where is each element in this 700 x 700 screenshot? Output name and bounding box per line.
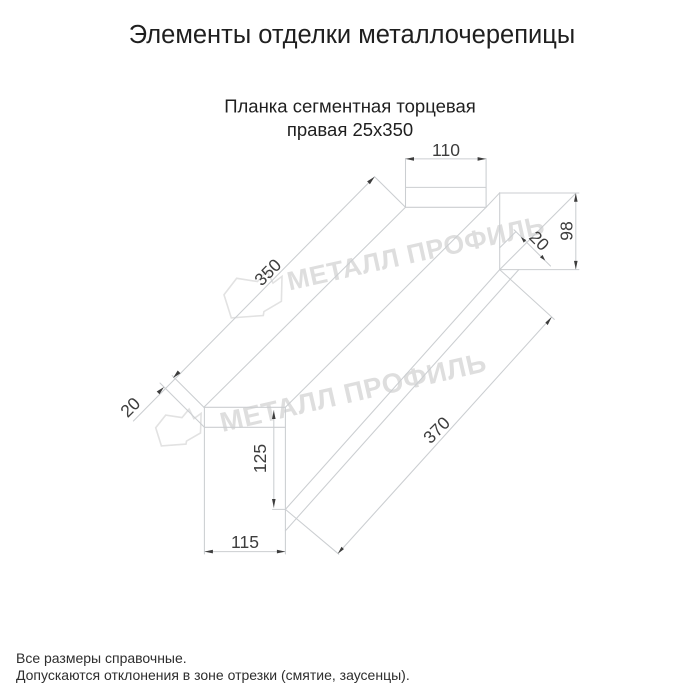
svg-text:Допускаются отклонения в зоне: Допускаются отклонения в зоне отрезки (с…	[16, 667, 410, 683]
svg-text:110: 110	[432, 140, 460, 160]
svg-text:правая 25х350: правая 25х350	[287, 119, 413, 140]
svg-text:Элементы отделки металлочерепи: Элементы отделки металлочерепицы	[129, 21, 575, 49]
svg-text:125: 125	[250, 444, 270, 473]
svg-text:98: 98	[556, 221, 576, 240]
svg-text:115: 115	[231, 532, 259, 552]
svg-text:Все размеры справочные.: Все размеры справочные.	[16, 650, 187, 666]
svg-text:Планка сегментная торцевая: Планка сегментная торцевая	[224, 96, 476, 117]
